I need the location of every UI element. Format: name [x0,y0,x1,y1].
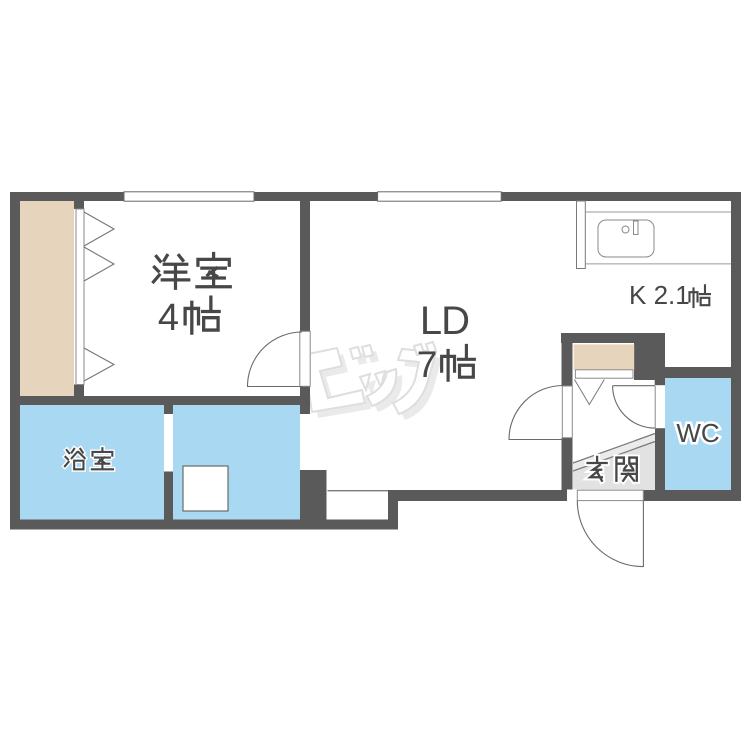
svg-text:K 2.1: K 2.1 [629,280,690,310]
svg-text:LD: LD [420,299,469,343]
svg-text:WC: WC [676,418,719,448]
svg-text:7: 7 [417,344,438,385]
svg-text:4: 4 [158,297,179,339]
